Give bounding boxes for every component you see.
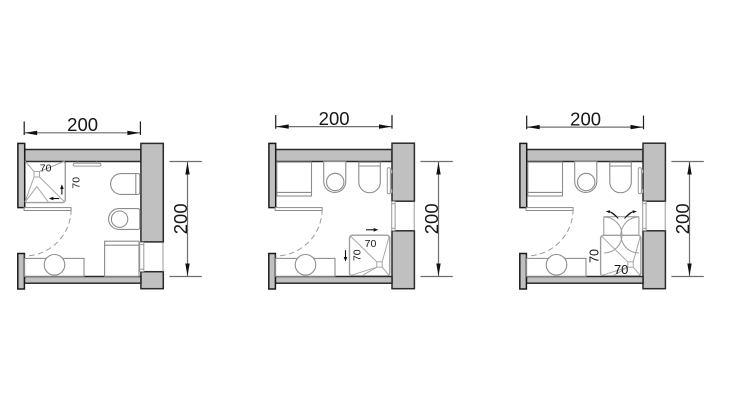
svg-text:200: 200 — [421, 203, 442, 234]
svg-text:70: 70 — [365, 238, 377, 250]
svg-text:70: 70 — [70, 177, 82, 189]
svg-text:200: 200 — [672, 203, 693, 234]
svg-text:200: 200 — [67, 114, 98, 135]
svg-text:70: 70 — [352, 249, 364, 261]
svg-text:70: 70 — [587, 249, 601, 263]
svg-text:200: 200 — [570, 108, 601, 129]
svg-text:200: 200 — [170, 203, 191, 234]
svg-text:70: 70 — [40, 162, 52, 174]
svg-text:70: 70 — [614, 262, 628, 277]
svg-text:200: 200 — [319, 108, 350, 129]
